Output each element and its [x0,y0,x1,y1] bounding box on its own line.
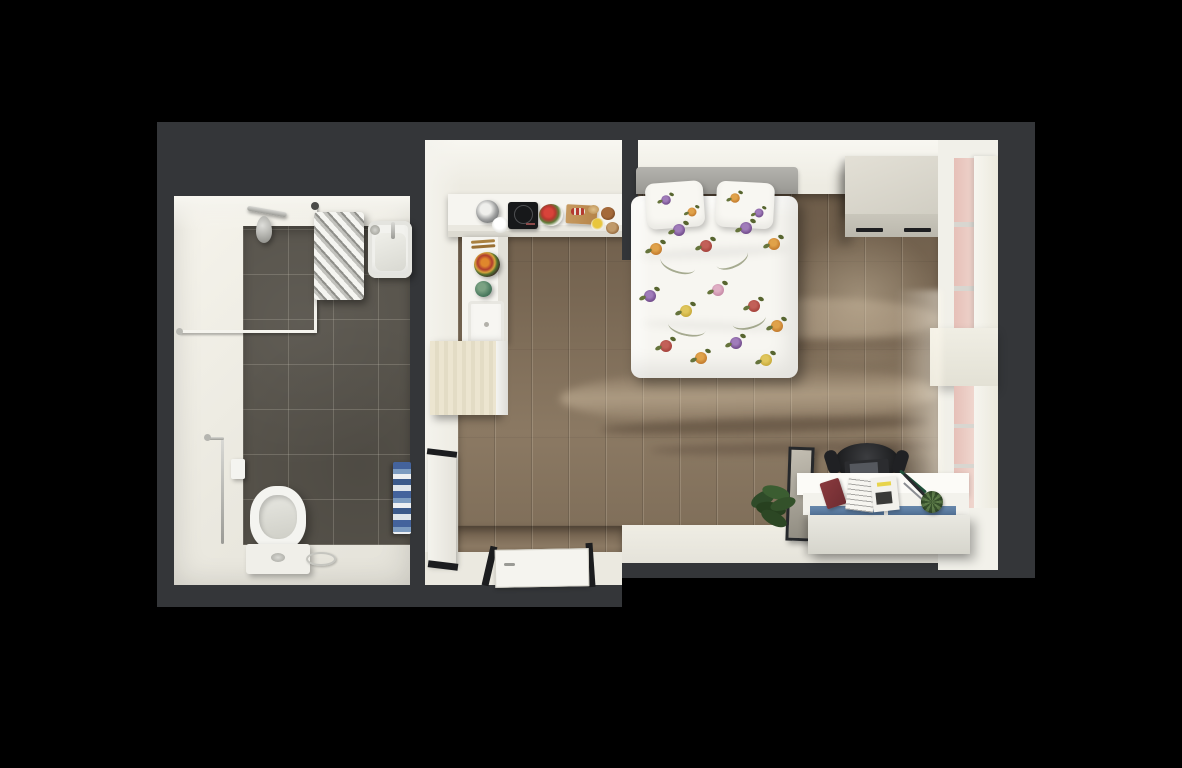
floral-motif [700,240,712,252]
window-mullion [954,286,976,291]
white-bowl [492,217,509,233]
decor-ball [475,281,492,297]
sink-drain [484,322,489,327]
chopped-food [571,208,585,215]
hob-ring [514,205,533,224]
window-glass-upper [954,158,976,328]
basin-spout [391,222,395,239]
sheer-curtain-lower [974,386,998,508]
striped-towel [393,462,411,534]
floor-drain [306,552,336,566]
floral-motif [730,337,742,349]
yellow-bowl [591,218,605,231]
wardrobe-handle [856,228,883,232]
floral-motif [755,209,764,218]
rail-end-cap [176,328,183,335]
floral-motif [644,290,656,302]
hob-controls [526,223,535,225]
floral-motif [688,208,697,217]
toilet-seat-inner [259,495,297,539]
sheer-curtain-upper [974,156,998,330]
floral-motif [661,195,671,205]
tomato-plate [539,204,563,226]
entry-door-leaf [495,548,590,588]
magazine-photo [875,491,892,505]
flush-button [271,553,285,562]
window-mullion [954,424,976,428]
floral-motif [740,222,752,234]
salad-plate [474,252,500,277]
brown-bowl [601,207,615,220]
shower-head [256,216,272,243]
floral-motif [760,354,772,366]
rail-ceiling-mount [311,202,319,210]
floral-motif [771,320,783,332]
door-handle [504,563,515,566]
basin-faucet [370,225,380,235]
closet [428,454,456,566]
floral-motif [695,352,707,364]
towel-radiator [314,212,364,300]
floral-motif [730,193,740,203]
shower-curtain-rail-horizontal [180,330,316,333]
basin-bowl [375,233,406,271]
floral-motif [660,340,672,352]
towel-rail [221,438,224,544]
wardrobe-handle [904,228,931,232]
floral-motif [650,243,662,255]
wooden-bowl [606,222,619,234]
fridge-side-panel [496,341,508,415]
window-mullion [954,464,976,468]
desk-front [808,515,970,554]
toilet-paper-holder [231,459,245,479]
floral-motif [673,224,685,236]
towel-rail-knob [204,434,211,441]
window-mullion [954,222,976,227]
floral-motif [712,284,724,296]
succulent [921,491,943,513]
floor-plan-canvas [0,0,1182,768]
fridge [430,341,498,415]
floral-motif [680,305,692,317]
bread [588,205,599,214]
floral-motif [768,238,780,250]
